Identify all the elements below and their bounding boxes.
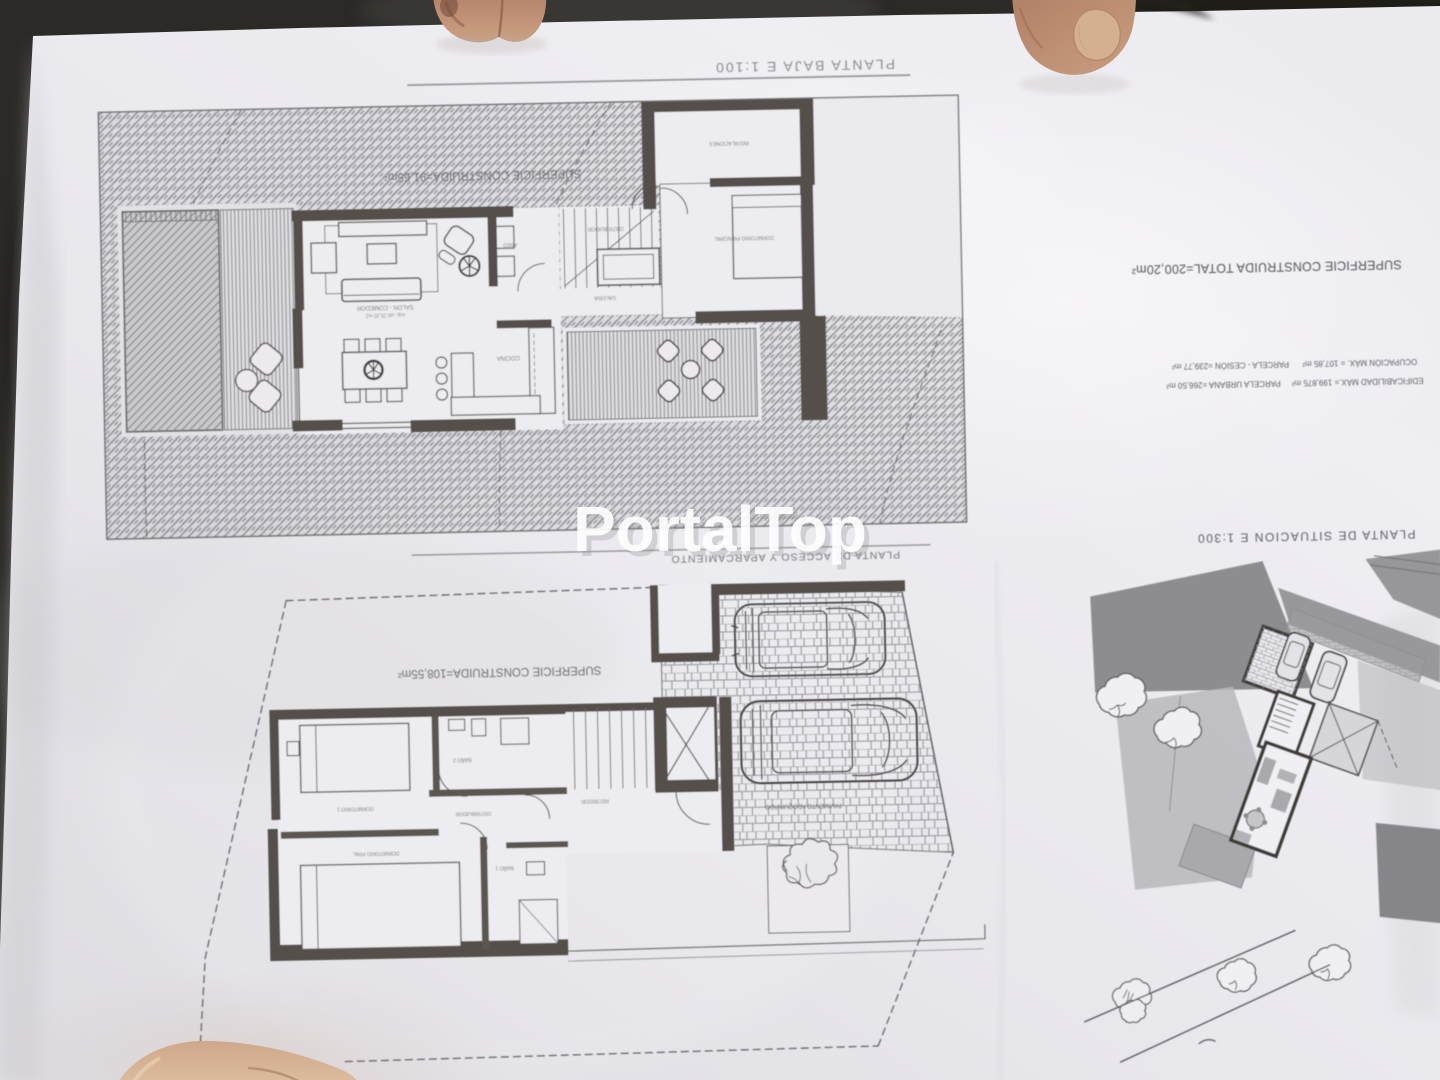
svg-text:GALERIA: GALERIA [594, 294, 616, 300]
svg-text:ASEO: ASEO [503, 241, 517, 247]
svg-text:sup. util 28,20 m2: sup. util 28,20 m2 [365, 311, 405, 318]
svg-text:RECIBIDOR: RECIBIDOR [581, 797, 609, 804]
svg-text:DISTRIBUIDOR: DISTRIBUIDOR [587, 225, 623, 232]
svg-text:DISTRIBUIDOR: DISTRIBUIDOR [455, 810, 491, 817]
svg-text:SALON - COMEDOR: SALON - COMEDOR [356, 303, 414, 310]
svg-text:INSTALACIONES: INSTALACIONES [708, 139, 748, 146]
svg-text:COCINA: COCINA [497, 354, 520, 360]
svg-text:PortalTop: PortalTop [573, 493, 867, 565]
svg-text:BAÑO 2: BAÑO 2 [453, 756, 472, 763]
svg-text:DORMITORIO 1: DORMITORIO 1 [337, 805, 374, 812]
svg-text:DORMITORIO PPAL: DORMITORIO PPAL [353, 849, 400, 856]
svg-text:BAÑO 1: BAÑO 1 [495, 864, 514, 871]
svg-text:DORMITORIO PRINCIPAL: DORMITORIO PRINCIPAL [714, 234, 774, 241]
